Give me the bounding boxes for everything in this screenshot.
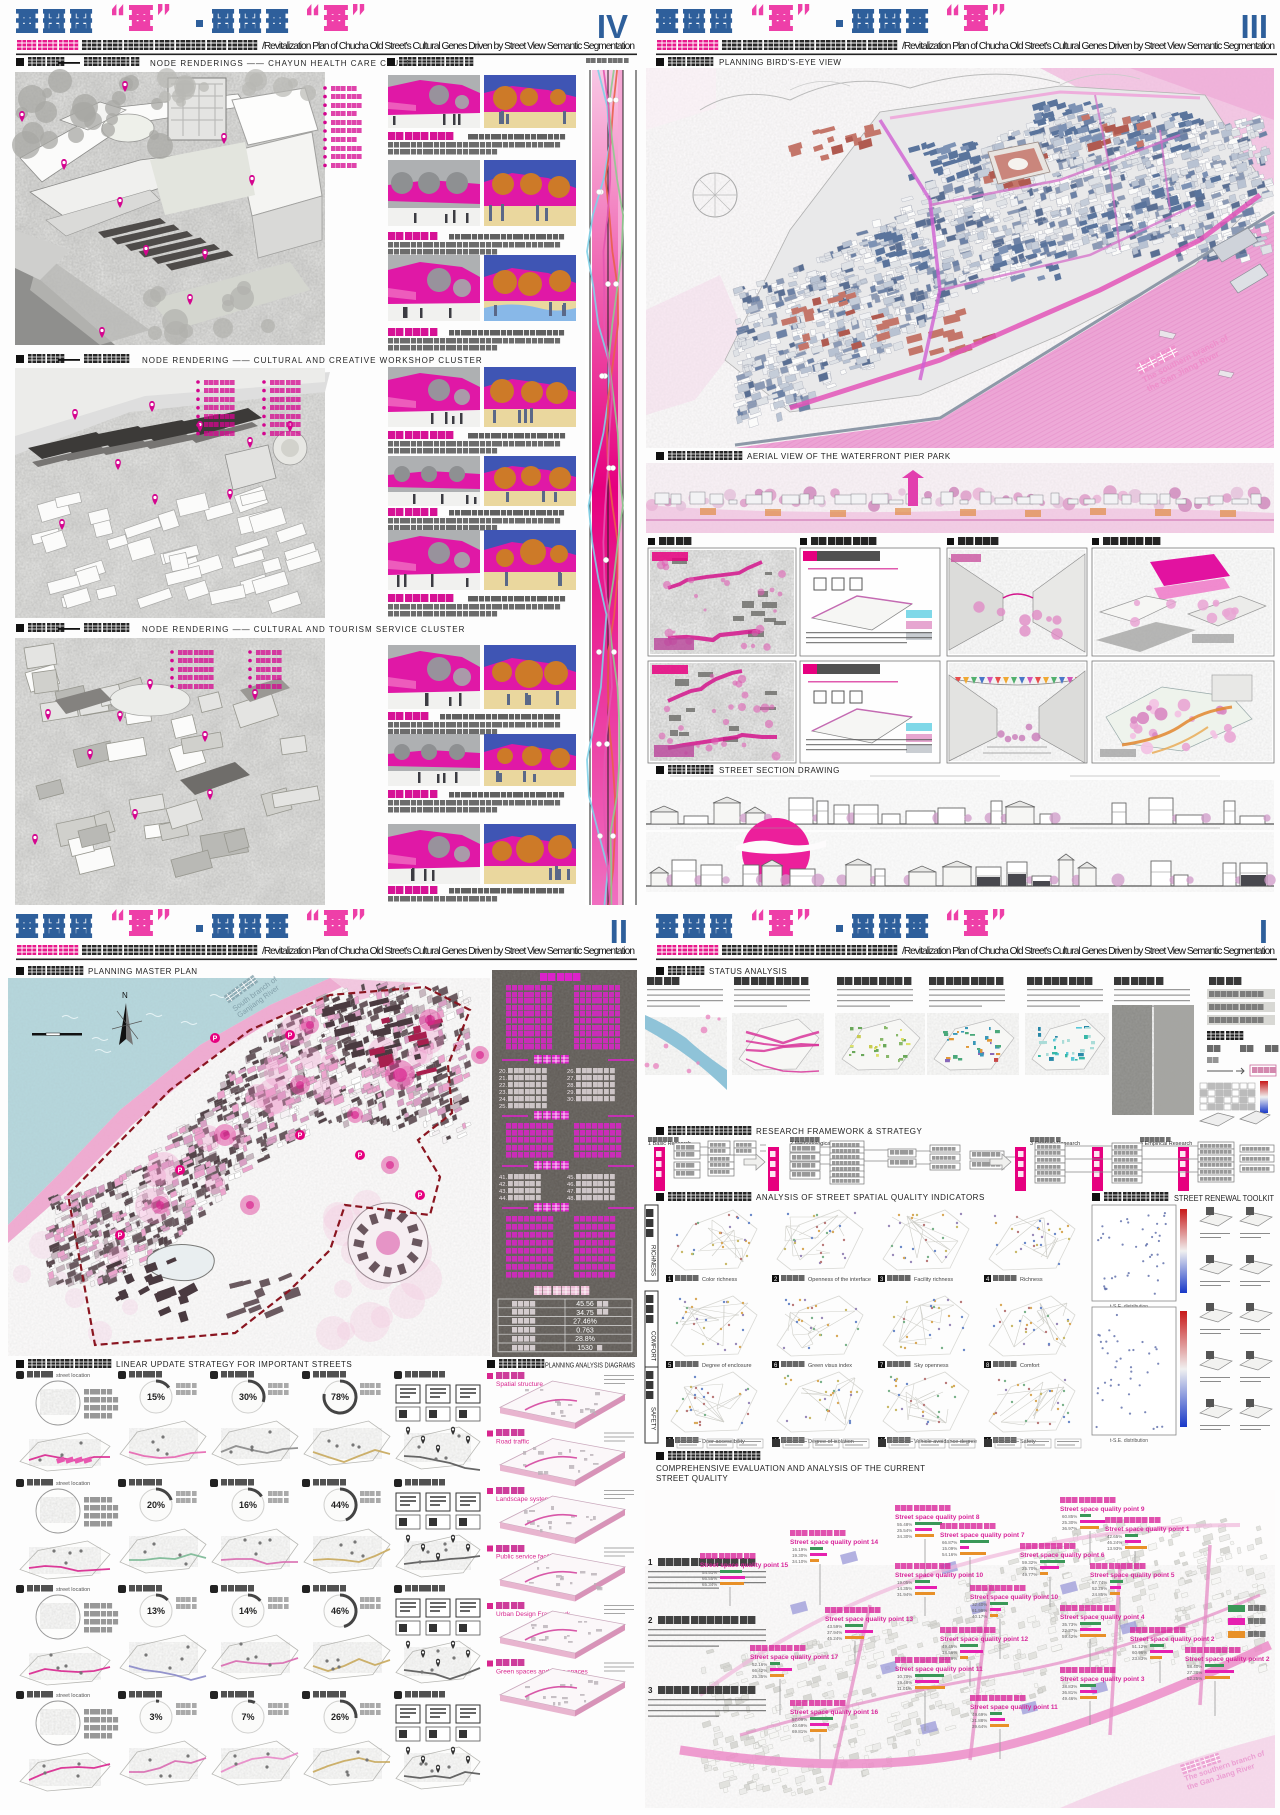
svg-text:STREET QUALITY: STREET QUALITY: [656, 1474, 728, 1483]
svg-text:22.37%: 22.37%: [1062, 1628, 1077, 1633]
svg-text:59.42%: 59.42%: [1062, 1634, 1077, 1639]
svg-text:57.09%: 57.09%: [792, 1717, 807, 1722]
svg-text:AERIAL VIEW OF THE WATERFRONT: AERIAL VIEW OF THE WATERFRONT PIER PARK: [747, 452, 951, 461]
svg-text:Street space quality point 10: Street space quality point 10: [895, 1572, 984, 1579]
svg-text:PLANNING MASTER PLAN: PLANNING MASTER PLAN: [88, 967, 198, 976]
svg-text:street location: street location: [56, 1693, 90, 1699]
svg-text:Street space quality point 12: Street space quality point 12: [940, 1636, 1029, 1643]
svg-text:Street space quality point 2: Street space quality point 2: [1130, 1636, 1215, 1643]
svg-text:27.: 27.: [567, 1076, 575, 1082]
svg-text:20.: 20.: [499, 1069, 507, 1075]
svg-text:NODE RENDERING —— CULTURAL AND: NODE RENDERING —— CULTURAL AND TOURISM S…: [142, 625, 465, 634]
svg-text:65.34%: 65.34%: [702, 1582, 717, 1587]
svg-text:14.35%: 14.35%: [897, 1586, 912, 1591]
svg-text:Street space quality point 6: Street space quality point 6: [1020, 1552, 1105, 1559]
svg-text:IV: IV: [597, 8, 628, 45]
svg-text:P: P: [118, 1233, 123, 1240]
svg-text:13%: 13%: [147, 1606, 165, 1616]
svg-text:21.88%: 21.88%: [972, 1718, 987, 1723]
svg-text:Color richness: Color richness: [702, 1277, 737, 1283]
svg-text:1530: 1530: [577, 1345, 593, 1352]
svg-text:Openness of the interface: Openness of the interface: [808, 1277, 871, 1283]
svg-text:46.: 46.: [567, 1182, 575, 1188]
svg-text:N: N: [122, 991, 128, 1000]
svg-text:Street space quality point 2: Street space quality point 2: [1185, 1656, 1270, 1663]
svg-text:III: III: [1240, 8, 1268, 45]
svg-text:48.: 48.: [567, 1196, 575, 1202]
svg-text:COMPREHENSIVE EVALUATION AND A: COMPREHENSIVE EVALUATION AND ANALYSIS OF…: [656, 1464, 925, 1473]
svg-text:24.85%: 24.85%: [1092, 1592, 1107, 1597]
svg-text:Street space quality point 11: Street space quality point 11: [895, 1666, 983, 1673]
svg-text:25.70%: 25.70%: [1022, 1566, 1037, 1571]
svg-text:Street space quality point 17: Street space quality point 17: [750, 1654, 839, 1661]
svg-text:/Revitalization Plan of Chucha: /Revitalization Plan of Chucha Old Stree…: [262, 41, 635, 52]
svg-text:66.42%: 66.42%: [752, 1668, 767, 1673]
svg-text:38.83%: 38.83%: [1062, 1684, 1077, 1689]
svg-text:54.16%: 54.16%: [942, 1552, 957, 1557]
svg-text:I: I: [1259, 913, 1268, 950]
svg-text:Street space quality point 13: Street space quality point 13: [825, 1616, 914, 1623]
svg-text:42.: 42.: [499, 1182, 507, 1188]
svg-text:RESEARCH FRAMEWORK & STRATEGY: RESEARCH FRAMEWORK & STRATEGY: [756, 1127, 923, 1136]
svg-text:19.30%: 19.30%: [792, 1553, 807, 1558]
svg-text:11.01%: 11.01%: [897, 1686, 912, 1691]
svg-text:15.09%: 15.09%: [942, 1546, 957, 1551]
svg-text:P: P: [298, 1133, 303, 1140]
svg-text:Street space quality point 14: Street space quality point 14: [790, 1539, 879, 1546]
svg-text:/Revitalization Plan of Chucha: /Revitalization Plan of Chucha Old Stree…: [902, 946, 1275, 957]
svg-text:78%: 78%: [331, 1392, 349, 1402]
svg-text:40.69%: 40.69%: [792, 1723, 807, 1728]
svg-text:30.: 30.: [567, 1097, 575, 1103]
svg-text:2: 2: [648, 1616, 653, 1625]
svg-text:P: P: [358, 1153, 363, 1160]
svg-text:21.: 21.: [499, 1076, 507, 1082]
svg-text:Spatial structure: Spatial structure: [496, 1381, 543, 1388]
svg-text:34.10%: 34.10%: [792, 1559, 807, 1564]
svg-text:15%: 15%: [147, 1392, 165, 1402]
svg-text:20%: 20%: [147, 1500, 165, 1510]
svg-text:27.38%: 27.38%: [1187, 1670, 1202, 1675]
svg-text:24.: 24.: [499, 1097, 507, 1103]
svg-text:10.70%: 10.70%: [897, 1674, 912, 1679]
svg-text:COMFORT: COMFORT: [650, 1331, 656, 1362]
svg-text:Street space quality point 16: Street space quality point 16: [790, 1709, 879, 1716]
svg-text:street location: street location: [56, 1373, 90, 1379]
svg-text:STREET SECTION DRAWING: STREET SECTION DRAWING: [719, 766, 840, 775]
svg-text:25.35%: 25.35%: [752, 1674, 767, 1679]
svg-text:street location: street location: [56, 1587, 90, 1593]
svg-text:16%: 16%: [239, 1500, 257, 1510]
svg-text:Street space quality point 15: Street space quality point 15: [700, 1562, 789, 1569]
svg-text:PLANNING BIRD'S-EYE VIEW: PLANNING BIRD'S-EYE VIEW: [719, 58, 841, 67]
svg-text:45.24%: 45.24%: [827, 1636, 842, 1641]
svg-text:46%: 46%: [331, 1606, 349, 1616]
svg-text:34.30%: 34.30%: [897, 1534, 912, 1539]
svg-text:60.85%: 60.85%: [1062, 1514, 1077, 1519]
svg-text:Degree of enclosure: Degree of enclosure: [702, 1363, 752, 1369]
svg-text:49.45%: 49.45%: [942, 1644, 957, 1649]
svg-text:STREET RENEWAL TOOLKIT: STREET RENEWAL TOOLKIT: [1174, 1194, 1274, 1203]
svg-text:Street space quality point 3: Street space quality point 3: [1060, 1676, 1145, 1683]
svg-text:31.94%: 31.94%: [897, 1592, 912, 1597]
svg-text:37.94%: 37.94%: [827, 1630, 842, 1635]
svg-text:STATUS ANALYSIS: STATUS ANALYSIS: [709, 967, 787, 976]
svg-text:Richness: Richness: [1020, 1277, 1043, 1283]
svg-text:Comfort: Comfort: [1020, 1363, 1040, 1369]
svg-text:28.: 28.: [567, 1083, 575, 1089]
svg-text:P: P: [178, 1168, 183, 1175]
svg-text:47.: 47.: [567, 1189, 575, 1195]
svg-text:34.75: 34.75: [576, 1310, 594, 1317]
svg-text:PLANNING ANALYSIS DIAGRAMS: PLANNING ANALYSIS DIAGRAMS: [545, 1361, 635, 1370]
svg-text:43.59%: 43.59%: [827, 1624, 842, 1629]
svg-text:P: P: [288, 1033, 293, 1040]
svg-text:26%: 26%: [331, 1712, 349, 1722]
svg-text:51.12%: 51.12%: [1132, 1644, 1147, 1649]
svg-text:45.56: 45.56: [576, 1301, 594, 1308]
svg-text:36.81%: 36.81%: [1062, 1690, 1077, 1695]
svg-text:19.48%: 19.48%: [897, 1680, 912, 1685]
svg-text:46.24%: 46.24%: [1107, 1540, 1122, 1545]
svg-text:55.48%: 55.48%: [897, 1522, 912, 1527]
svg-text:61.99%: 61.99%: [972, 1608, 987, 1613]
svg-text:29.: 29.: [567, 1090, 575, 1096]
svg-text:14%: 14%: [239, 1606, 257, 1616]
svg-text:44%: 44%: [331, 1500, 349, 1510]
svg-text:42.65%: 42.65%: [1107, 1534, 1122, 1539]
svg-text:3%: 3%: [149, 1712, 162, 1722]
svg-text:3: 3: [648, 1686, 653, 1695]
svg-text:54.51%: 54.51%: [702, 1570, 717, 1575]
svg-text:23.: 23.: [499, 1090, 507, 1096]
svg-text:/Revitalization Plan of Chucha: /Revitalization Plan of Chucha Old Stree…: [262, 946, 635, 957]
svg-text:II: II: [610, 913, 628, 950]
svg-text:44.: 44.: [499, 1196, 507, 1202]
svg-text:49.46%: 49.46%: [1062, 1696, 1077, 1701]
svg-text:41.: 41.: [499, 1175, 507, 1181]
svg-text:40.17%: 40.17%: [972, 1614, 987, 1619]
svg-text:52.25%: 52.25%: [1187, 1676, 1202, 1681]
svg-text:Street space quality point 7: Street space quality point 7: [940, 1532, 1025, 1539]
svg-text:street location: street location: [56, 1481, 90, 1487]
svg-text:SAFETY: SAFETY: [650, 1407, 656, 1430]
svg-text:39.64%: 39.64%: [972, 1724, 987, 1729]
svg-text:NODE RENDERINGS —— CHAYUN HEAL: NODE RENDERINGS —— CHAYUN HEALTH CARE CL…: [150, 59, 425, 68]
svg-text:66.55%: 66.55%: [702, 1576, 717, 1581]
svg-text:/Revitalization Plan of Chucha: /Revitalization Plan of Chucha Old Stree…: [902, 41, 1275, 52]
svg-text:67.74%: 67.74%: [1092, 1580, 1107, 1585]
svg-text:1: 1: [648, 1558, 653, 1567]
svg-text:49.77%: 49.77%: [1022, 1572, 1037, 1577]
svg-text:25.30%: 25.30%: [1062, 1520, 1077, 1525]
svg-text:66.87%: 66.87%: [942, 1540, 957, 1545]
svg-text:18.56%: 18.56%: [942, 1650, 957, 1655]
svg-text:59.32%: 59.32%: [1022, 1560, 1037, 1565]
svg-text:Street space quality point 8: Street space quality point 8: [895, 1514, 980, 1521]
svg-text:7%: 7%: [241, 1712, 254, 1722]
svg-text:NODE RENDERING —— CULTURAL AND: NODE RENDERING —— CULTURAL AND CREATIVE …: [142, 356, 483, 365]
svg-text:32.40%: 32.40%: [972, 1602, 987, 1607]
svg-text:49.69%: 49.69%: [972, 1712, 987, 1717]
svg-text:Sky openness: Sky openness: [914, 1363, 949, 1369]
svg-text:LINEAR UPDATE STRATEGY FOR IMP: LINEAR UPDATE STRATEGY FOR IMPORTANT STR…: [116, 1360, 352, 1369]
svg-text:28.8%: 28.8%: [575, 1336, 595, 1343]
svg-text:36.97%: 36.97%: [1062, 1526, 1077, 1531]
svg-text:Facility richness: Facility richness: [914, 1277, 953, 1283]
svg-text:52.29%: 52.29%: [1092, 1586, 1107, 1591]
svg-text:60.96%: 60.96%: [1132, 1650, 1147, 1655]
svg-text:23.83%: 23.83%: [1132, 1656, 1147, 1661]
svg-text:P: P: [213, 1036, 218, 1043]
svg-text:ANALYSIS OF STREET SPATIAL QUA: ANALYSIS OF STREET SPATIAL QUALITY INDIC…: [756, 1193, 985, 1202]
svg-text:43.: 43.: [499, 1189, 507, 1195]
svg-text:Green visus index: Green visus index: [808, 1363, 852, 1369]
svg-text:45.: 45.: [567, 1175, 575, 1181]
svg-text:Street space quality point 5: Street space quality point 5: [1090, 1572, 1175, 1579]
svg-text:25.: 25.: [499, 1104, 507, 1110]
svg-text:P: P: [418, 1193, 423, 1200]
svg-text:16.19%: 16.19%: [792, 1547, 807, 1552]
svg-text:Street space quality point 4: Street space quality point 4: [1060, 1614, 1145, 1621]
svg-text:26.: 26.: [567, 1069, 575, 1075]
svg-text:Street space quality point 10: Street space quality point 10: [970, 1594, 1059, 1601]
svg-text:Street space quality point 1: Street space quality point 1: [1105, 1526, 1190, 1533]
svg-text:22.: 22.: [499, 1083, 507, 1089]
svg-text:0.763: 0.763: [576, 1327, 594, 1334]
svg-text:RICHNESS: RICHNESS: [650, 1245, 656, 1276]
svg-text:Road traffic: Road traffic: [496, 1439, 530, 1446]
svg-text:Street space quality point 9: Street space quality point 9: [1060, 1506, 1145, 1513]
svg-text:30%: 30%: [239, 1392, 257, 1402]
svg-text:69.81%: 69.81%: [792, 1729, 807, 1734]
svg-text:t-S.E. distribution: t-S.E. distribution: [1110, 1438, 1148, 1444]
svg-text:13.93%: 13.93%: [1107, 1546, 1122, 1551]
svg-text:19.05%: 19.05%: [897, 1580, 912, 1585]
svg-text:35.73%: 35.73%: [1062, 1622, 1077, 1627]
svg-text:52.16%: 52.16%: [752, 1662, 767, 1667]
svg-text:Street space quality point 11: Street space quality point 11: [970, 1704, 1058, 1711]
svg-text:27.46%: 27.46%: [573, 1319, 597, 1326]
svg-text:58.40%: 58.40%: [1187, 1664, 1202, 1669]
svg-text:25.54%: 25.54%: [897, 1528, 912, 1533]
